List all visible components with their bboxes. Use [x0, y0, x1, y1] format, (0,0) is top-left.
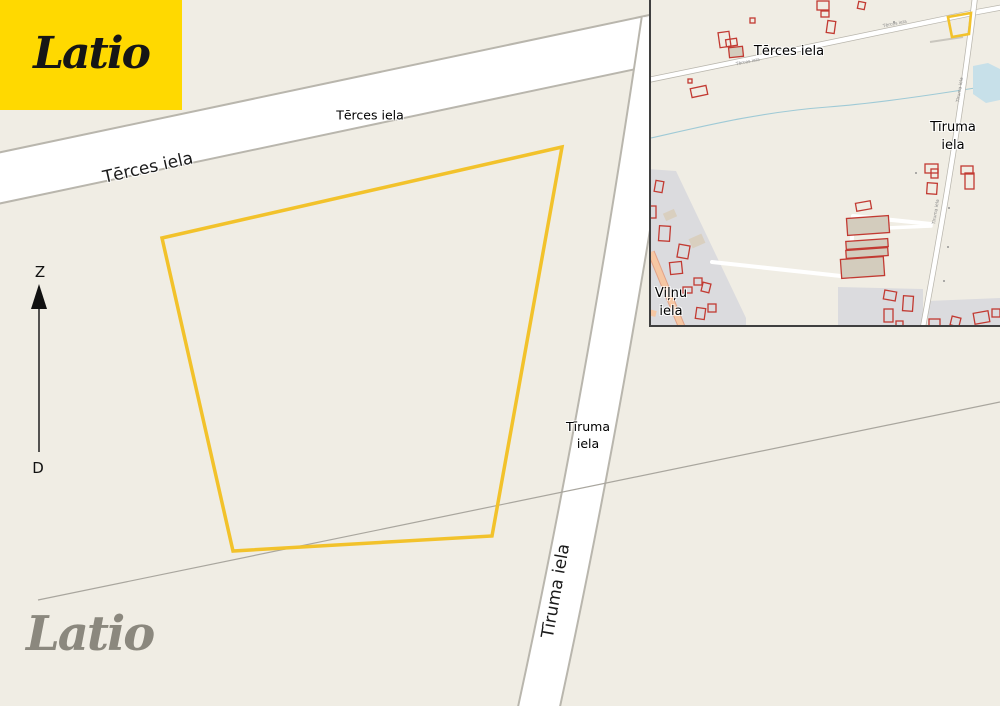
- building: [846, 216, 889, 236]
- terces-iela-label: Tērces iela: [336, 107, 404, 124]
- tiruma-iela-label-line2: iela: [566, 435, 610, 452]
- building: [943, 280, 945, 282]
- inset-branch-road: [886, 226, 931, 228]
- map-canvas: Tērces iela Tērces iela Tīruma iela Tīru…: [0, 0, 1000, 706]
- building: [840, 257, 884, 279]
- latio-logo: Latio: [0, 0, 182, 110]
- building: [948, 207, 950, 209]
- parcel-outline: [162, 147, 562, 551]
- building: [927, 183, 938, 195]
- tiruma-iela-label-line1: Tīruma: [566, 418, 610, 435]
- inset-vilnu-line1: Viļņu: [655, 285, 687, 303]
- building: [726, 38, 738, 46]
- industrial-area-left: [838, 287, 923, 325]
- building: [855, 201, 871, 211]
- inset-vilnu-line2: iela: [655, 303, 687, 321]
- compass-south-label: D: [32, 459, 44, 477]
- building: [821, 11, 829, 17]
- inset-farm-track: [712, 216, 931, 277]
- building: [915, 172, 917, 174]
- compass-arrow: [31, 284, 47, 452]
- boundary-line: [38, 402, 1000, 600]
- inset-map-svg: Tērces iela Tērces iela Tīruma iela Tīru…: [651, 0, 1000, 325]
- building: [826, 21, 836, 34]
- inset-tiruma-line1: Tīruma: [930, 119, 976, 137]
- inset-vilnu-label: Viļņu iela: [655, 285, 687, 321]
- latio-logo-text: Latio: [33, 28, 149, 79]
- inset-driveway: [930, 37, 963, 42]
- building: [688, 79, 692, 83]
- inset-terces-label: Tērces iela: [754, 43, 824, 61]
- building: [690, 85, 708, 97]
- building: [750, 18, 755, 23]
- inset-tiruma-label: Tīruma iela: [930, 119, 976, 155]
- building: [947, 246, 949, 248]
- tiruma-iela-label: Tīruma iela: [566, 418, 610, 452]
- pond: [973, 63, 1000, 103]
- building: [965, 173, 974, 189]
- building: [857, 1, 865, 9]
- inset-map: Tērces iela Tērces iela Tīruma iela Tīru…: [649, 0, 1000, 327]
- inset-tiruma-line2: iela: [930, 137, 976, 155]
- building: [729, 46, 744, 57]
- building: [817, 1, 829, 10]
- latio-watermark: Latio: [26, 606, 153, 662]
- compass-north-label: Z: [35, 263, 45, 281]
